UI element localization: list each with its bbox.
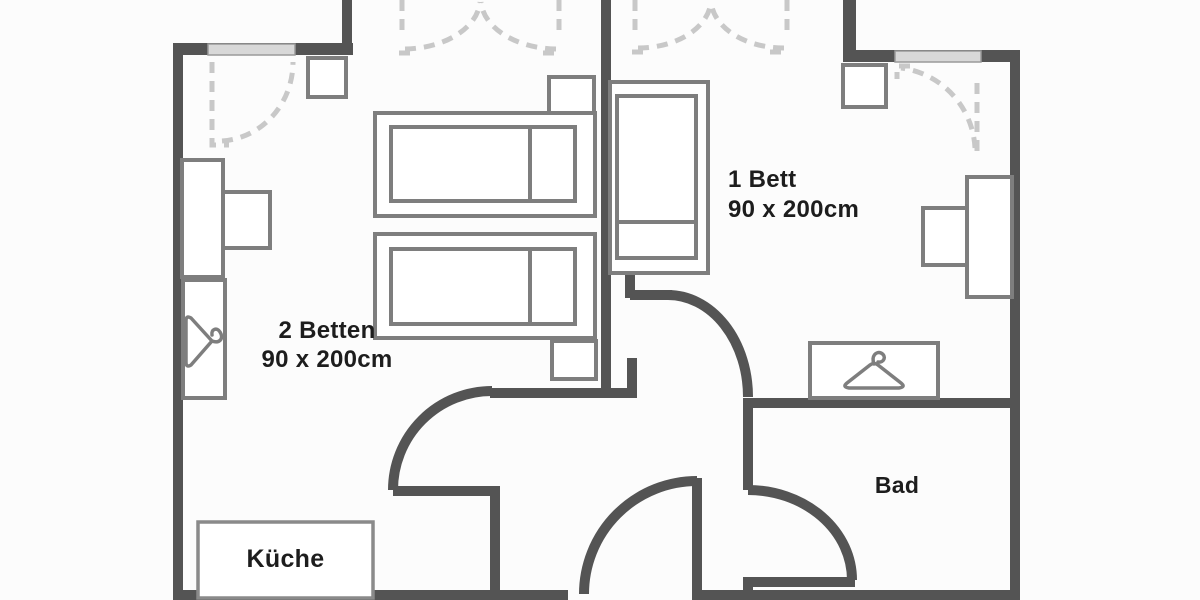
nightstand-right-room: [843, 65, 886, 107]
nightstand-left-room-bottom: [552, 341, 596, 379]
corner-table-left-room: [308, 58, 346, 97]
wall-bathroom-lower-left: [743, 577, 855, 587]
desk-right-room: [967, 177, 1012, 297]
bedroom-left-label: 2 Betten 90 x 200cm: [237, 316, 417, 374]
bed-right-room: [610, 82, 708, 273]
wall-jog-left-balcony: [342, 0, 352, 52]
bathroom-label: Bad: [857, 471, 937, 500]
chair-right-room: [923, 208, 967, 265]
window-top-right: [895, 51, 981, 62]
bedroom-left-label-line2: 90 x 200cm: [237, 345, 417, 374]
wall-hall-left: [490, 486, 500, 600]
wall-right: [1010, 50, 1020, 600]
nightstand-left-room-top: [549, 77, 594, 113]
entry-door-leaf: [692, 478, 702, 600]
floor-plan: 2 Betten 90 x 200cm 1 Bett 90 x 200cm Ba…: [0, 0, 1200, 600]
bedroom-right-label: 1 Bett 90 x 200cm: [728, 165, 859, 225]
wall-bathroom-left-upper: [743, 398, 753, 490]
chair-left-room: [223, 192, 270, 248]
wall-jog-right-balcony: [843, 0, 856, 62]
bedroom-right-label-line2: 90 x 200cm: [728, 195, 859, 225]
wall-stub-door-jamb: [627, 358, 637, 392]
bed-left-room-top: [375, 113, 595, 216]
bedroom-right-label-line1: 1 Bett: [728, 165, 859, 195]
bedroom-left-label-line1: 2 Betten: [237, 316, 417, 345]
kitchen-label: Küche: [198, 545, 373, 574]
wall-bathroom-lower-stub: [743, 577, 753, 600]
wall-hall-top-left: [393, 486, 500, 496]
wall-under-left-bedroom: [490, 388, 637, 398]
wall-stub-right-door-top: [630, 290, 672, 300]
floor-plan-drawing: [0, 0, 1200, 600]
desk-left-room: [182, 160, 223, 277]
wardrobe-left-room: [183, 280, 225, 398]
window-top-left: [208, 44, 295, 55]
